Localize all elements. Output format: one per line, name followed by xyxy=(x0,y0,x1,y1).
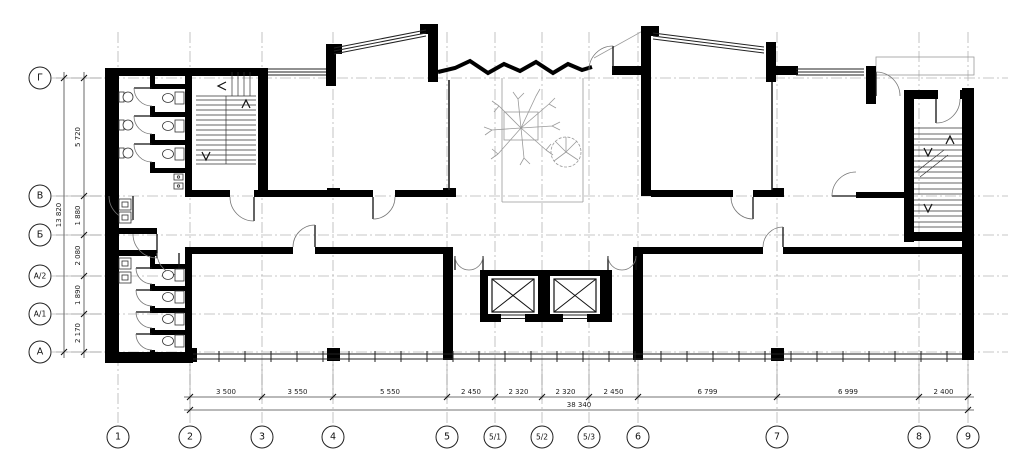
floor-plan-page: 3 500 3 550 5 550 2 450 2 320 2 320 2 45… xyxy=(0,0,1024,470)
elevator-door-gap xyxy=(563,313,587,322)
axis-bubble-label: Г xyxy=(37,73,43,84)
axis-bubble-label: 1 xyxy=(115,432,121,443)
axis-bubble-label: 7 xyxy=(774,432,780,443)
axis-bubble-label: 2 xyxy=(187,432,193,443)
floor-plan-svg: 3 500 3 550 5 550 2 450 2 320 2 320 2 45… xyxy=(0,0,1024,470)
axis-bubble-label: 5/2 xyxy=(536,433,548,442)
roof-outline-top-right xyxy=(876,57,974,75)
stair-right xyxy=(914,128,962,227)
stair-arrow-left xyxy=(218,82,226,90)
axis-bubble-label: А xyxy=(37,347,44,358)
axis-bubble-label: В xyxy=(37,191,44,202)
elevator-door-gap xyxy=(501,313,525,322)
axis-bubble-label: 5 xyxy=(444,432,450,443)
curtain-wall-bottom xyxy=(193,351,962,362)
dim-label: 5 550 xyxy=(380,388,400,396)
canopy-line xyxy=(594,28,648,58)
axis-bubbles-left: Г В Б А/2 А/1 А xyxy=(29,67,51,363)
stair-arrow-up xyxy=(946,136,954,144)
dim-label: 6 999 xyxy=(838,388,858,396)
elevator-left xyxy=(492,279,534,312)
stair-arrow-down xyxy=(202,152,210,160)
dim-label: 3 550 xyxy=(287,388,307,396)
dim-label: 2 400 xyxy=(933,388,953,396)
dim-label: 1 890 xyxy=(74,285,82,305)
dim-label: 2 450 xyxy=(603,388,623,396)
dim-label: 2 170 xyxy=(74,323,82,343)
axis-bubble-label: 5/3 xyxy=(583,433,595,442)
elevator-core xyxy=(480,270,612,322)
axis-bubble-label: Б xyxy=(37,230,44,241)
dim-total-label: 38 340 xyxy=(567,401,592,409)
axis-bubble-label: 3 xyxy=(259,432,265,443)
stair-arrow-down xyxy=(924,148,932,156)
axis-bubble-label: 6 xyxy=(635,432,641,443)
axis-bubbles-bottom: 1 2 3 4 5 5/1 5/2 5/3 6 7 8 9 xyxy=(107,426,979,448)
dim-label: 1 880 xyxy=(74,205,82,225)
axis-bubble-label: А/2 xyxy=(34,272,47,281)
glazed-partitions xyxy=(449,80,772,190)
dim-label: 6 799 xyxy=(697,388,717,396)
axis-bubble-label: 5/1 xyxy=(489,433,501,442)
dim-label: 2 320 xyxy=(508,388,528,396)
dim-label: 2 080 xyxy=(74,245,82,265)
grid-lines xyxy=(52,32,1008,425)
dimensions-left: 5 720 1 880 2 080 1 890 2 170 13 820 xyxy=(55,72,102,358)
dim-total-label: 13 820 xyxy=(55,203,63,228)
dimensions-bottom: 3 500 3 550 5 550 2 450 2 320 2 320 2 45… xyxy=(184,364,974,413)
stair-top-left xyxy=(196,72,256,164)
grid-vertical-lines xyxy=(118,32,968,425)
dim-label: 3 500 xyxy=(216,388,236,396)
axis-bubble-label: 9 xyxy=(965,432,971,443)
dim-label: 2 320 xyxy=(555,388,575,396)
axis-bubble-label: А/1 xyxy=(34,310,47,319)
axis-bubble-label: 8 xyxy=(916,432,922,443)
tree-round xyxy=(551,137,581,167)
dim-label: 2 450 xyxy=(461,388,481,396)
zigzag-facade xyxy=(438,61,592,73)
axis-bubble-label: 4 xyxy=(330,432,336,443)
atrium-outline xyxy=(502,28,648,202)
dim-label: 5 720 xyxy=(74,127,82,147)
elevator-right xyxy=(554,279,596,312)
stair-arrow-up xyxy=(242,100,250,108)
